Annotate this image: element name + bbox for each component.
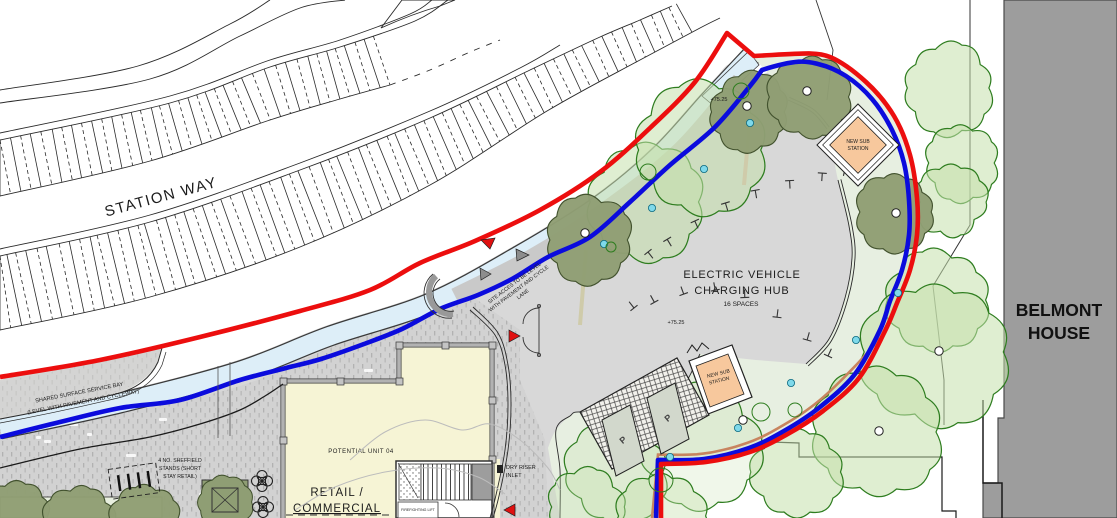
svg-text:+75.25: +75.25 xyxy=(668,320,685,326)
svg-text:STAY RETAIL): STAY RETAIL) xyxy=(163,474,197,480)
svg-text:HOUSE: HOUSE xyxy=(1028,323,1090,343)
svg-text:4 NO. SHEFFIELD: 4 NO. SHEFFIELD xyxy=(158,458,202,464)
svg-text:DRY RISER: DRY RISER xyxy=(506,465,536,471)
svg-text:CHARGING HUB: CHARGING HUB xyxy=(694,285,789,297)
svg-text:STANDS (SHORT: STANDS (SHORT xyxy=(159,466,202,472)
svg-text:16 SPACES: 16 SPACES xyxy=(724,301,760,308)
svg-text:COMMERCIAL: COMMERCIAL xyxy=(293,503,381,515)
svg-text:FIREFIGHTING LIFT: FIREFIGHTING LIFT xyxy=(401,508,436,512)
svg-text:RETAIL /: RETAIL / xyxy=(310,487,363,499)
svg-text:ELECTRIC VEHICLE: ELECTRIC VEHICLE xyxy=(683,269,800,281)
svg-text:BELMONT: BELMONT xyxy=(1016,300,1103,320)
svg-text:INLET: INLET xyxy=(506,473,522,479)
svg-text:+75.25: +75.25 xyxy=(711,97,728,103)
svg-text:STATION: STATION xyxy=(848,146,869,152)
svg-text:NEW SUB: NEW SUB xyxy=(846,139,870,145)
